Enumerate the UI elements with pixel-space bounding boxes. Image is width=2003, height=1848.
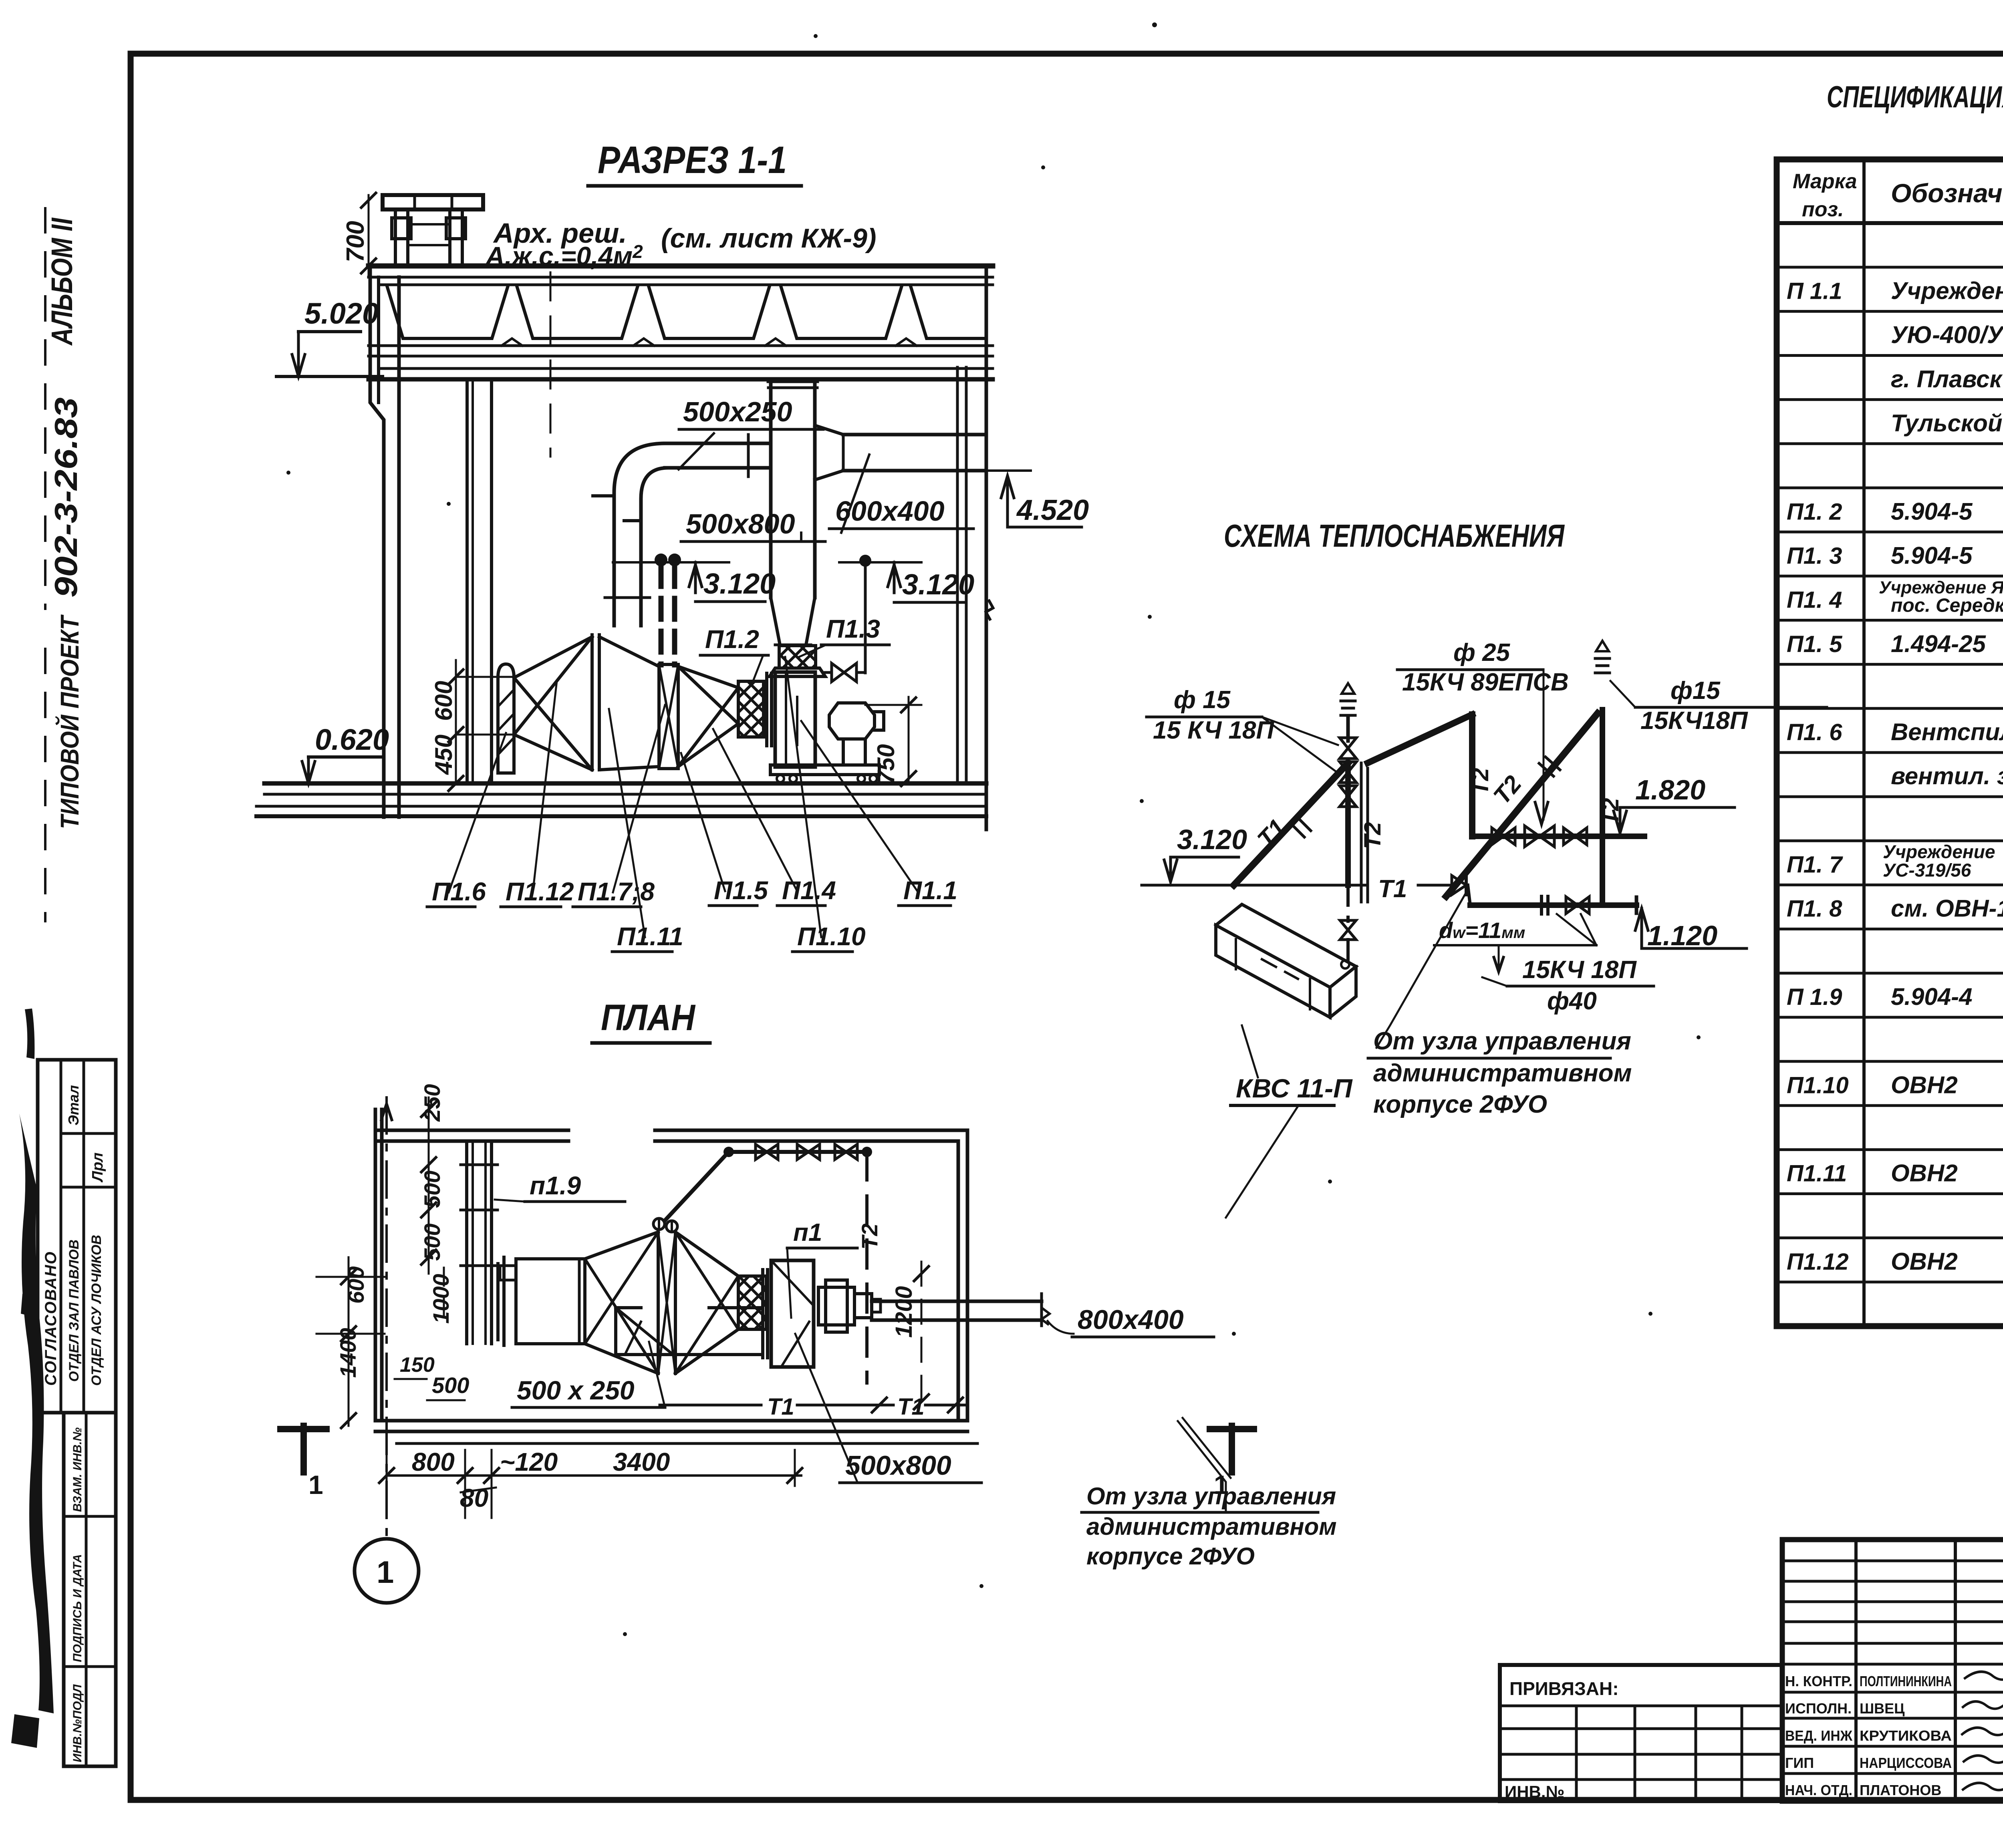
svg-text:Т2: Т2: [857, 1224, 882, 1250]
svg-text:ПОДПИСЬ И ДАТА: ПОДПИСЬ И ДАТА: [71, 1554, 84, 1662]
svg-text:ТИПОВОЙ ПРОЕКТ: ТИПОВОЙ ПРОЕКТ: [54, 614, 84, 829]
svg-text:Тульской обл.: Тульской обл.: [1891, 410, 2003, 437]
svg-text:поз.: поз.: [1802, 198, 1844, 221]
svg-text:Этал: Этал: [65, 1085, 82, 1125]
svg-text:800х400: 800х400: [1078, 1304, 1184, 1335]
svg-text:3.120: 3.120: [703, 568, 776, 600]
svg-text:500: 500: [419, 1224, 445, 1261]
svg-text:Обозначение: Обозначение: [1891, 178, 2003, 208]
svg-text:П1. 6: П1. 6: [1787, 719, 1842, 745]
svg-text:УС-319/56: УС-319/56: [1883, 860, 1971, 881]
svg-text:ОТДЕЛ АСУ ЛОЧИКОВ: ОТДЕЛ АСУ ЛОЧИКОВ: [89, 1235, 104, 1386]
svg-text:РАЗРЕЗ 1-1: РАЗРЕЗ 1-1: [598, 139, 787, 181]
svg-text:Учреждение ЯЛ-61/4: Учреждение ЯЛ-61/4: [1879, 578, 2003, 598]
svg-text:ОВН2: ОВН2: [1891, 1248, 1958, 1275]
svg-text:3.120: 3.120: [902, 569, 974, 601]
svg-text:ИНВ.№: ИНВ.№: [1505, 1782, 1564, 1801]
svg-text:УЮ-400/У: УЮ-400/У: [1891, 322, 2003, 348]
svg-text:ПЛАН: ПЛАН: [601, 997, 696, 1038]
svg-text:СХЕМА ТЕПЛОСНАБЖЕНИЯ: СХЕМА ТЕПЛОСНАБЖЕНИЯ: [1224, 518, 1565, 554]
svg-text:ПРИВЯЗАН:: ПРИВЯЗАН:: [1509, 1678, 1619, 1699]
svg-text:5.020: 5.020: [304, 297, 379, 330]
svg-text:15КЧ 18П: 15КЧ 18П: [1522, 956, 1637, 984]
svg-text:НАЧ. ОТД.: НАЧ. ОТД.: [1785, 1782, 1852, 1798]
svg-text:ОТДЕЛ ЗАЛ ПАВЛОВ: ОТДЕЛ ЗАЛ ПАВЛОВ: [66, 1240, 82, 1382]
svg-text:250: 250: [419, 1084, 445, 1122]
svg-text:750: 750: [873, 744, 899, 784]
svg-text:0.620: 0.620: [315, 723, 389, 756]
svg-text:П1.1: П1.1: [903, 876, 957, 905]
svg-text:КВС 11-П: КВС 11-П: [1236, 1073, 1353, 1103]
svg-text:ПЛАТОНОВ: ПЛАТОНОВ: [1860, 1782, 1941, 1798]
svg-text:700: 700: [342, 221, 369, 262]
svg-text:административном: административном: [1373, 1059, 1632, 1087]
svg-text:п1.9: п1.9: [530, 1171, 581, 1200]
svg-text:Вентспилсакий: Вентспилсакий: [1891, 719, 2003, 745]
svg-text:П1.10: П1.10: [1787, 1072, 1849, 1098]
svg-text:П 1.9: П 1.9: [1787, 984, 1842, 1010]
svg-text:5.904-5: 5.904-5: [1891, 498, 1973, 525]
svg-text:НАРЦИССОВА: НАРЦИССОВА: [1860, 1755, 1952, 1771]
svg-text:5.904-5: 5.904-5: [1891, 542, 1973, 569]
svg-text:ф40: ф40: [1547, 987, 1597, 1015]
svg-text:ОВН2: ОВН2: [1891, 1071, 1958, 1098]
svg-text:ВЕД. ИНЖ: ВЕД. ИНЖ: [1785, 1727, 1852, 1744]
svg-text:ГИП: ГИП: [1785, 1755, 1814, 1771]
svg-text:вентил. з-д: вентил. з-д: [1891, 763, 2003, 789]
svg-text:800: 800: [412, 1447, 455, 1476]
svg-text:5.904-4: 5.904-4: [1891, 983, 1973, 1010]
svg-text:От узла управления: От узла управления: [1086, 1483, 1336, 1510]
svg-text:см. ОВН-1: см. ОВН-1: [1891, 895, 2003, 922]
svg-text:3.120: 3.120: [1177, 824, 1247, 855]
svg-text:ИСПОЛН.: ИСПОЛН.: [1785, 1700, 1852, 1717]
svg-text:СОГЛАСОВАНО: СОГЛАСОВАНО: [42, 1251, 60, 1386]
svg-text:ШВЕЦ: ШВЕЦ: [1860, 1700, 1905, 1717]
svg-text:П1. 5: П1. 5: [1787, 631, 1842, 657]
svg-text:П1.3: П1.3: [826, 614, 880, 643]
svg-text:3400: 3400: [613, 1447, 670, 1476]
svg-text:СПЕЦИФИКАЦИЯ ОТОПИТЕЛЬНО - ВЕ: СПЕЦИФИКАЦИЯ ОТОПИТЕЛЬНО - ВЕНТИЛЯЦИОННЫ…: [1827, 80, 2003, 114]
svg-text:г. Плавск: г. Плавск: [1891, 366, 2003, 393]
svg-text:П1.10: П1.10: [797, 922, 866, 951]
svg-text:П1.11: П1.11: [1787, 1161, 1847, 1187]
svg-text:П1.11: П1.11: [617, 922, 683, 951]
svg-text:П 1.1: П 1.1: [1787, 278, 1842, 304]
svg-text:1.120: 1.120: [1647, 920, 1717, 951]
svg-text:ф 15: ф 15: [1174, 686, 1231, 714]
svg-text:500 х 250: 500 х 250: [517, 1375, 635, 1405]
svg-text:П1. 4: П1. 4: [1787, 587, 1842, 613]
svg-text:Н. КОНТР.: Н. КОНТР.: [1785, 1673, 1852, 1689]
svg-text:Марка: Марка: [1793, 170, 1857, 193]
svg-text:ПОЛТИНИНКИНА: ПОЛТИНИНКИНА: [1860, 1673, 1952, 1689]
svg-text:1.494-25: 1.494-25: [1891, 630, 1986, 657]
svg-text:КРУТИКОВА: КРУТИКОВА: [1860, 1727, 1952, 1744]
svg-text:административном: административном: [1086, 1513, 1337, 1540]
svg-text:~120: ~120: [500, 1447, 558, 1476]
svg-text:П1.12: П1.12: [1787, 1249, 1849, 1275]
svg-text:1: 1: [377, 1554, 394, 1590]
svg-text:п1: п1: [793, 1219, 822, 1246]
svg-text:ф15: ф15: [1671, 677, 1721, 705]
svg-text:корпусе 2ФУО: корпусе 2ФУО: [1086, 1543, 1255, 1570]
svg-text:500: 500: [419, 1171, 445, 1208]
svg-text:П1.6: П1.6: [432, 877, 486, 906]
svg-text:Учреждение: Учреждение: [1883, 841, 1995, 862]
svg-text:Т1: Т1: [767, 1394, 794, 1420]
svg-text:пос. Середка: пос. Середка: [1891, 595, 2003, 616]
svg-text:Т2: Т2: [1360, 822, 1386, 849]
svg-text:902-3-26.83: 902-3-26.83: [48, 397, 84, 598]
svg-text:АЛЬБОМ II: АЛЬБОМ II: [45, 217, 79, 346]
svg-text:4.520: 4.520: [1016, 494, 1089, 526]
svg-text:ВЗАМ. ИНВ.№: ВЗАМ. ИНВ.№: [71, 1427, 84, 1512]
svg-text:корпусе 2ФУО: корпусе 2ФУО: [1373, 1091, 1547, 1118]
svg-text:П1.12: П1.12: [506, 877, 574, 906]
svg-text:1: 1: [308, 1470, 323, 1500]
svg-text:1400: 1400: [335, 1328, 361, 1378]
svg-text:ф 25: ф 25: [1453, 639, 1511, 666]
svg-text:1.820: 1.820: [1635, 774, 1705, 805]
svg-text:15 КЧ 18П: 15 КЧ 18П: [1153, 717, 1274, 744]
svg-text:ОВН2: ОВН2: [1891, 1160, 1958, 1187]
svg-text:ИНВ.№ПОДЛ: ИНВ.№ПОДЛ: [71, 1684, 84, 1762]
svg-text:450: 450: [430, 735, 457, 775]
svg-text:(см. лист КЖ-9): (см. лист КЖ-9): [661, 223, 877, 254]
svg-text:500: 500: [432, 1373, 469, 1398]
svg-text:Т1: Т1: [1378, 875, 1407, 903]
svg-text:П1. 2: П1. 2: [1787, 499, 1842, 525]
svg-text:600х400: 600х400: [835, 495, 945, 527]
svg-text:Лрл: Лрл: [89, 1153, 106, 1183]
svg-text:15КЧ18П: 15КЧ18П: [1640, 707, 1748, 735]
svg-text:От узла управления: От узла управления: [1373, 1027, 1631, 1055]
svg-text:500х800: 500х800: [686, 508, 795, 540]
svg-text:П1.4: П1.4: [782, 876, 836, 905]
svg-text:П1. 3: П1. 3: [1787, 543, 1842, 569]
svg-text:600: 600: [430, 681, 457, 721]
svg-text:1000: 1000: [428, 1274, 453, 1324]
svg-text:П1.2: П1.2: [705, 625, 759, 654]
svg-text:500х800: 500х800: [845, 1450, 951, 1481]
svg-text:Учреждение: Учреждение: [1891, 277, 2003, 304]
svg-text:500х250: 500х250: [683, 396, 792, 427]
svg-text:600: 600: [343, 1266, 369, 1304]
svg-text:1200: 1200: [891, 1286, 917, 1338]
svg-text:П1. 7: П1. 7: [1787, 852, 1843, 878]
svg-text:П1. 8: П1. 8: [1787, 896, 1842, 922]
svg-text:80: 80: [460, 1484, 488, 1512]
svg-text:150: 150: [400, 1353, 435, 1377]
